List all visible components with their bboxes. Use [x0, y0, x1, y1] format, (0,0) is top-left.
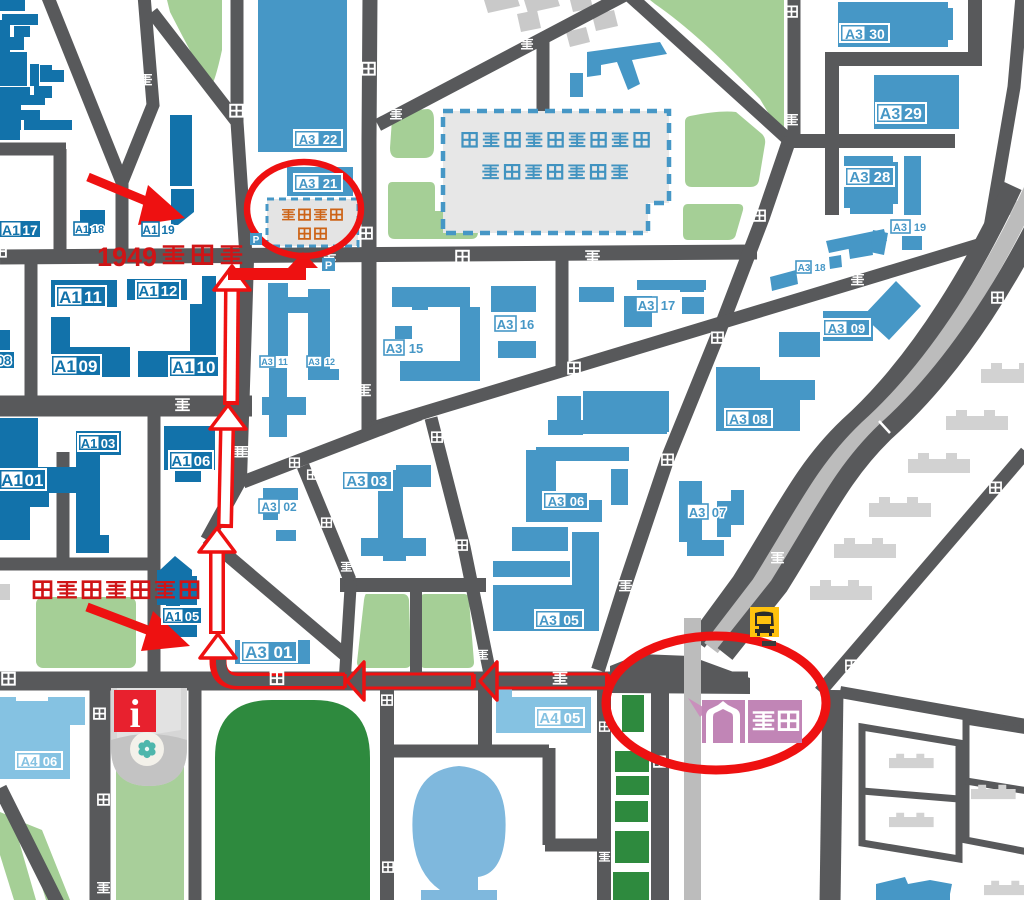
svg-text:18: 18 [814, 263, 826, 274]
svg-text:17: 17 [661, 298, 675, 313]
svg-text:12: 12 [325, 357, 335, 367]
svg-text:29: 29 [904, 106, 922, 123]
svg-text:07: 07 [712, 505, 726, 520]
svg-text:18: 18 [92, 224, 104, 236]
svg-text:i: i [129, 691, 140, 736]
svg-text:16: 16 [520, 317, 534, 332]
svg-text:A3: A3 [497, 317, 514, 332]
svg-text:11: 11 [278, 357, 288, 367]
svg-text:A3: A3 [845, 26, 863, 42]
svg-text:A3: A3 [849, 169, 868, 186]
svg-text:06: 06 [43, 754, 57, 769]
svg-text:A3: A3 [346, 473, 365, 490]
svg-text:01: 01 [25, 471, 44, 490]
svg-text:A1: A1 [172, 358, 194, 377]
svg-text:05: 05 [563, 612, 579, 628]
svg-text:17: 17 [22, 222, 38, 238]
svg-text:A3: A3 [245, 643, 267, 662]
svg-text:A1: A1 [165, 609, 182, 624]
svg-text:A1: A1 [2, 222, 20, 238]
svg-text:A1: A1 [138, 283, 157, 300]
svg-text:19: 19 [914, 222, 926, 234]
svg-text:A3: A3 [386, 341, 403, 356]
svg-text:A3: A3 [548, 494, 565, 509]
svg-text:06: 06 [570, 494, 584, 509]
svg-text:A1: A1 [142, 223, 158, 237]
svg-text:28: 28 [874, 169, 891, 186]
svg-text:A3: A3 [299, 176, 316, 191]
svg-text:06: 06 [194, 453, 211, 470]
svg-text:A1: A1 [171, 453, 190, 470]
svg-text:A4: A4 [539, 710, 559, 727]
svg-text:12: 12 [161, 283, 178, 300]
svg-text:A1: A1 [81, 436, 98, 451]
svg-text:19: 19 [161, 223, 175, 237]
svg-text:A3: A3 [893, 222, 907, 234]
svg-text:A3: A3 [729, 411, 747, 427]
svg-text:A3: A3 [299, 132, 316, 147]
svg-text:03: 03 [371, 473, 388, 490]
svg-text:09: 09 [79, 357, 98, 376]
svg-text:A1: A1 [54, 357, 76, 376]
svg-text:05: 05 [185, 609, 199, 624]
svg-text:08: 08 [752, 411, 768, 427]
svg-text:P: P [325, 260, 332, 272]
svg-text:A3: A3 [880, 106, 901, 123]
svg-text:08: 08 [0, 353, 11, 368]
svg-text:P: P [253, 235, 260, 246]
svg-text:10: 10 [197, 358, 216, 377]
svg-text:1949: 1949 [97, 242, 157, 272]
svg-text:03: 03 [101, 436, 115, 451]
svg-text:A3: A3 [539, 612, 557, 628]
svg-text:09: 09 [851, 321, 865, 336]
svg-text:A4: A4 [21, 754, 38, 769]
svg-text:05: 05 [564, 710, 581, 727]
svg-text:01: 01 [274, 643, 293, 662]
svg-text:02: 02 [283, 500, 297, 514]
svg-text:A1: A1 [59, 288, 81, 307]
svg-text:30: 30 [869, 26, 885, 42]
svg-text:A3: A3 [261, 500, 277, 514]
svg-text:15: 15 [409, 341, 423, 356]
svg-text:A3: A3 [308, 357, 320, 367]
svg-text:11: 11 [84, 288, 102, 307]
svg-text:22: 22 [323, 132, 337, 147]
svg-text:A3: A3 [828, 321, 845, 336]
svg-text:A3: A3 [261, 357, 273, 367]
svg-text:A3: A3 [798, 263, 811, 274]
svg-text:21: 21 [323, 176, 337, 191]
svg-text:A3: A3 [689, 505, 706, 520]
svg-text:A1: A1 [1, 471, 23, 490]
svg-text:A1: A1 [75, 224, 89, 236]
svg-text:A3: A3 [638, 298, 655, 313]
